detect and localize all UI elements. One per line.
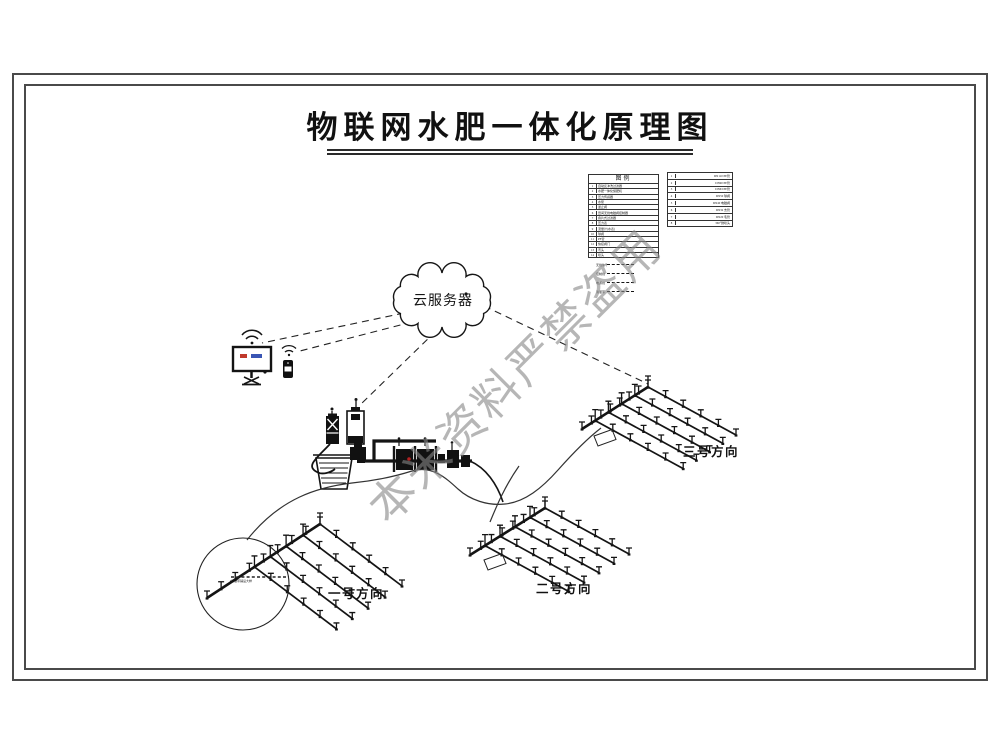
phone-icon — [282, 346, 296, 378]
spec-row: 2DN90 PE管 — [668, 180, 732, 187]
field1-label: 一号方向 — [328, 583, 384, 602]
detail-callout-circle — [197, 538, 289, 630]
link-cloud-to-controller — [361, 331, 436, 404]
wifi-icon — [285, 350, 293, 352]
cloud-server-label: 云服务器 — [404, 290, 482, 310]
fertilizer-tank-a-icon — [326, 408, 339, 445]
drawing-sheet: 物联网水肥一体化原理图 — [0, 0, 1000, 750]
spec-row: 7DN20 毛管 — [668, 214, 732, 221]
link-cloud-to-monitor — [262, 313, 404, 343]
branch-to-field2 — [490, 466, 519, 522]
callout-label: 滴灌带铺设大样 — [231, 579, 293, 583]
spec-row: 6DN32 支管 — [668, 207, 732, 214]
field2-label: 二号方向 — [536, 578, 592, 597]
monitor-screen-red-block — [240, 354, 247, 358]
link-cloud-to-phone — [296, 322, 412, 352]
outflow-pipe — [470, 461, 503, 502]
monitor-icon — [233, 330, 271, 384]
spec-row: 8360°微喷头 — [668, 221, 732, 227]
monitor-screen-blue-block — [251, 354, 262, 358]
spec-row: 3DN63 PE管 — [668, 187, 732, 194]
legend-table-title: 图例 — [589, 175, 658, 184]
fertilizer-tank-b-icon — [347, 398, 364, 444]
spec-table-body: 1DN110 PE管2DN90 PE管3DN63 PE管4DN50 球阀5DN4… — [668, 173, 732, 226]
wifi-icon — [246, 336, 258, 339]
spec-row: 5DN40 电磁阀 — [668, 200, 732, 207]
spec-table: 1DN110 PE管2DN90 PE管3DN63 PE管4DN50 球阀5DN4… — [667, 172, 733, 227]
spec-row: 1DN110 PE管 — [668, 173, 732, 180]
field3-label: 三号方向 — [683, 441, 739, 460]
spec-row: 4DN50 球阀 — [668, 193, 732, 200]
